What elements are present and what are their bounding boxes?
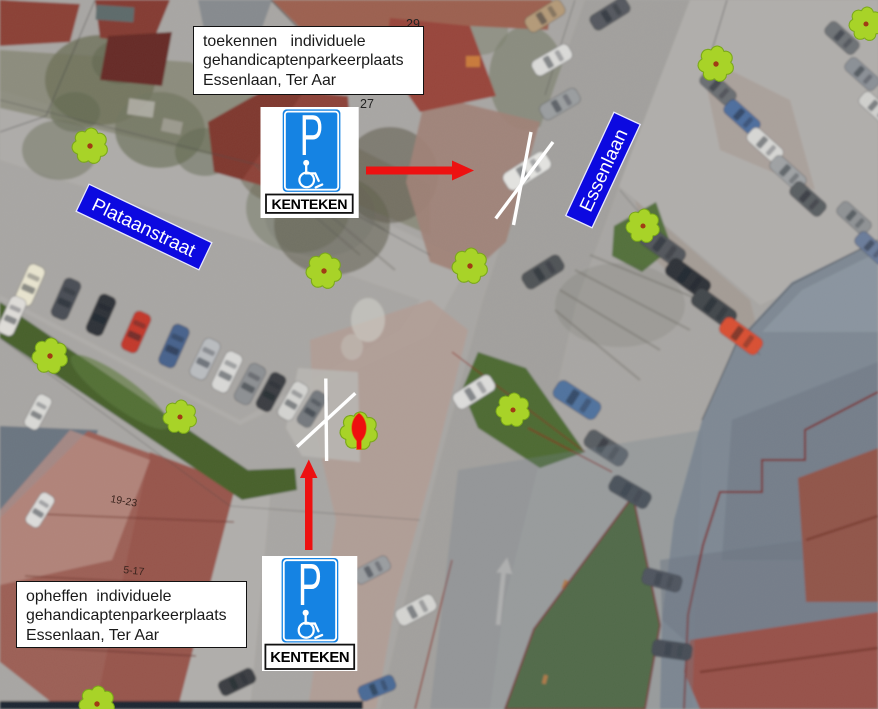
svg-text:5-17: 5-17 [123,564,145,578]
svg-text:P: P [298,551,322,618]
svg-text:KENTEKEN: KENTEKEN [270,650,349,666]
svg-text:KENTEKEN: KENTEKEN [272,197,348,213]
svg-text:27: 27 [360,97,374,111]
svg-text:P: P [300,104,324,168]
